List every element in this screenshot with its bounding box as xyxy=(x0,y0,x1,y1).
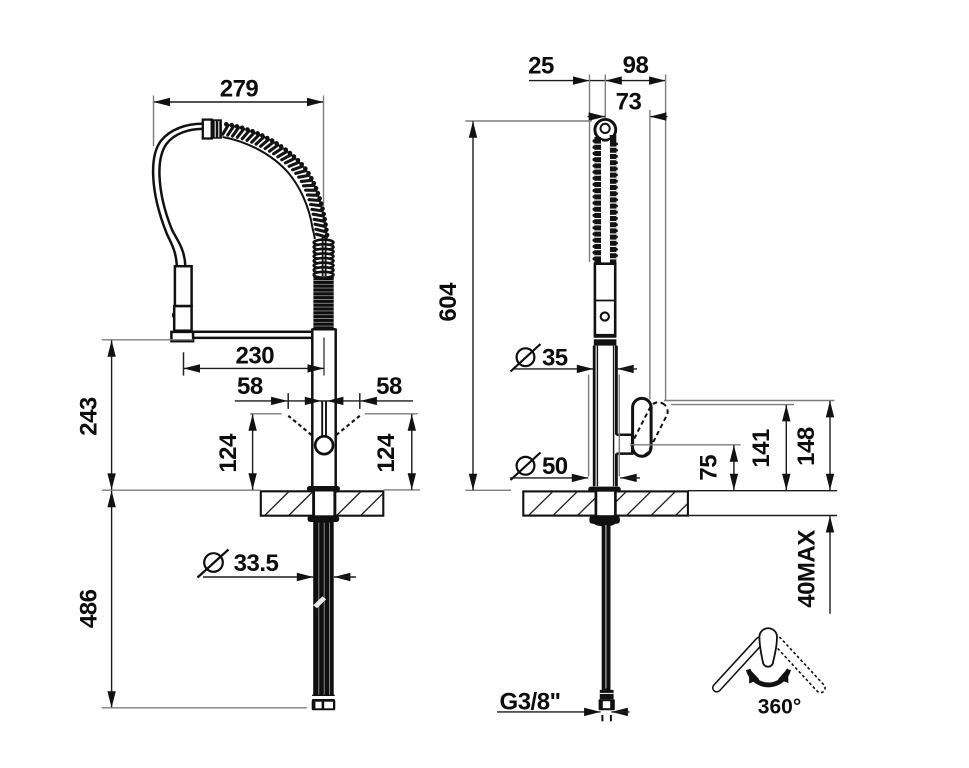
svg-text:124: 124 xyxy=(215,433,242,473)
svg-text:33.5: 33.5 xyxy=(234,550,279,577)
svg-text:124: 124 xyxy=(373,433,400,473)
svg-text:40MAX: 40MAX xyxy=(794,530,821,608)
svg-text:35: 35 xyxy=(542,345,568,372)
svg-text:58: 58 xyxy=(237,373,263,400)
svg-text:141: 141 xyxy=(748,429,775,468)
svg-text:98: 98 xyxy=(623,52,649,79)
svg-text:243: 243 xyxy=(75,397,102,436)
svg-text:50: 50 xyxy=(542,453,568,480)
svg-text:230: 230 xyxy=(236,343,275,370)
svg-text:73: 73 xyxy=(616,89,642,116)
svg-text:25: 25 xyxy=(528,53,554,80)
svg-text:58: 58 xyxy=(376,373,402,400)
svg-text:360°: 360° xyxy=(758,696,801,719)
svg-text:486: 486 xyxy=(75,589,102,628)
svg-text:75: 75 xyxy=(696,455,723,481)
svg-text:148: 148 xyxy=(793,427,820,466)
svg-text:279: 279 xyxy=(220,76,259,103)
svg-text:604: 604 xyxy=(435,282,462,322)
